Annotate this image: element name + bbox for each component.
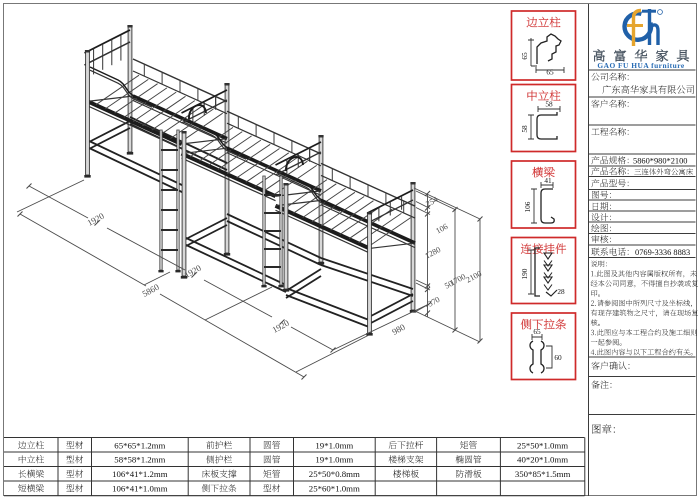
svg-text:65: 65: [546, 68, 554, 77]
svg-text:19*1.0mm: 19*1.0mm: [315, 440, 353, 450]
svg-text:65*65*1.2mm: 65*65*1.2mm: [114, 440, 165, 450]
svg-text:106: 106: [523, 201, 532, 212]
svg-text:19*1.0mm: 19*1.0mm: [315, 455, 353, 465]
svg-text:25*60*1.0mm: 25*60*1.0mm: [309, 484, 360, 494]
svg-text:GAO FU HUA furniture: GAO FU HUA furniture: [597, 61, 684, 70]
svg-text:40*20*1.0mm: 40*20*1.0mm: [517, 455, 568, 465]
svg-text:58: 58: [520, 125, 529, 133]
svg-text:58: 58: [545, 100, 553, 109]
svg-text:65: 65: [533, 327, 541, 336]
svg-text:25*50*1.0mm: 25*50*1.0mm: [517, 440, 568, 450]
svg-text:106*41*1.0mm: 106*41*1.0mm: [112, 484, 168, 494]
svg-text:28: 28: [557, 287, 565, 296]
svg-text:0769-3336 8883: 0769-3336 8883: [635, 248, 690, 257]
svg-text:41: 41: [544, 176, 552, 185]
svg-text:350*85*1.5mm: 350*85*1.5mm: [515, 469, 571, 479]
svg-text:58*58*1.2mm: 58*58*1.2mm: [114, 455, 165, 465]
svg-text:65: 65: [520, 52, 529, 60]
svg-text:190: 190: [520, 268, 529, 279]
svg-text:60: 60: [554, 353, 562, 362]
svg-text:25*50*0.8mm: 25*50*0.8mm: [309, 469, 360, 479]
svg-text:5860*980*2100: 5860*980*2100: [633, 157, 687, 166]
svg-text:106*41*1.2mm: 106*41*1.2mm: [112, 469, 168, 479]
